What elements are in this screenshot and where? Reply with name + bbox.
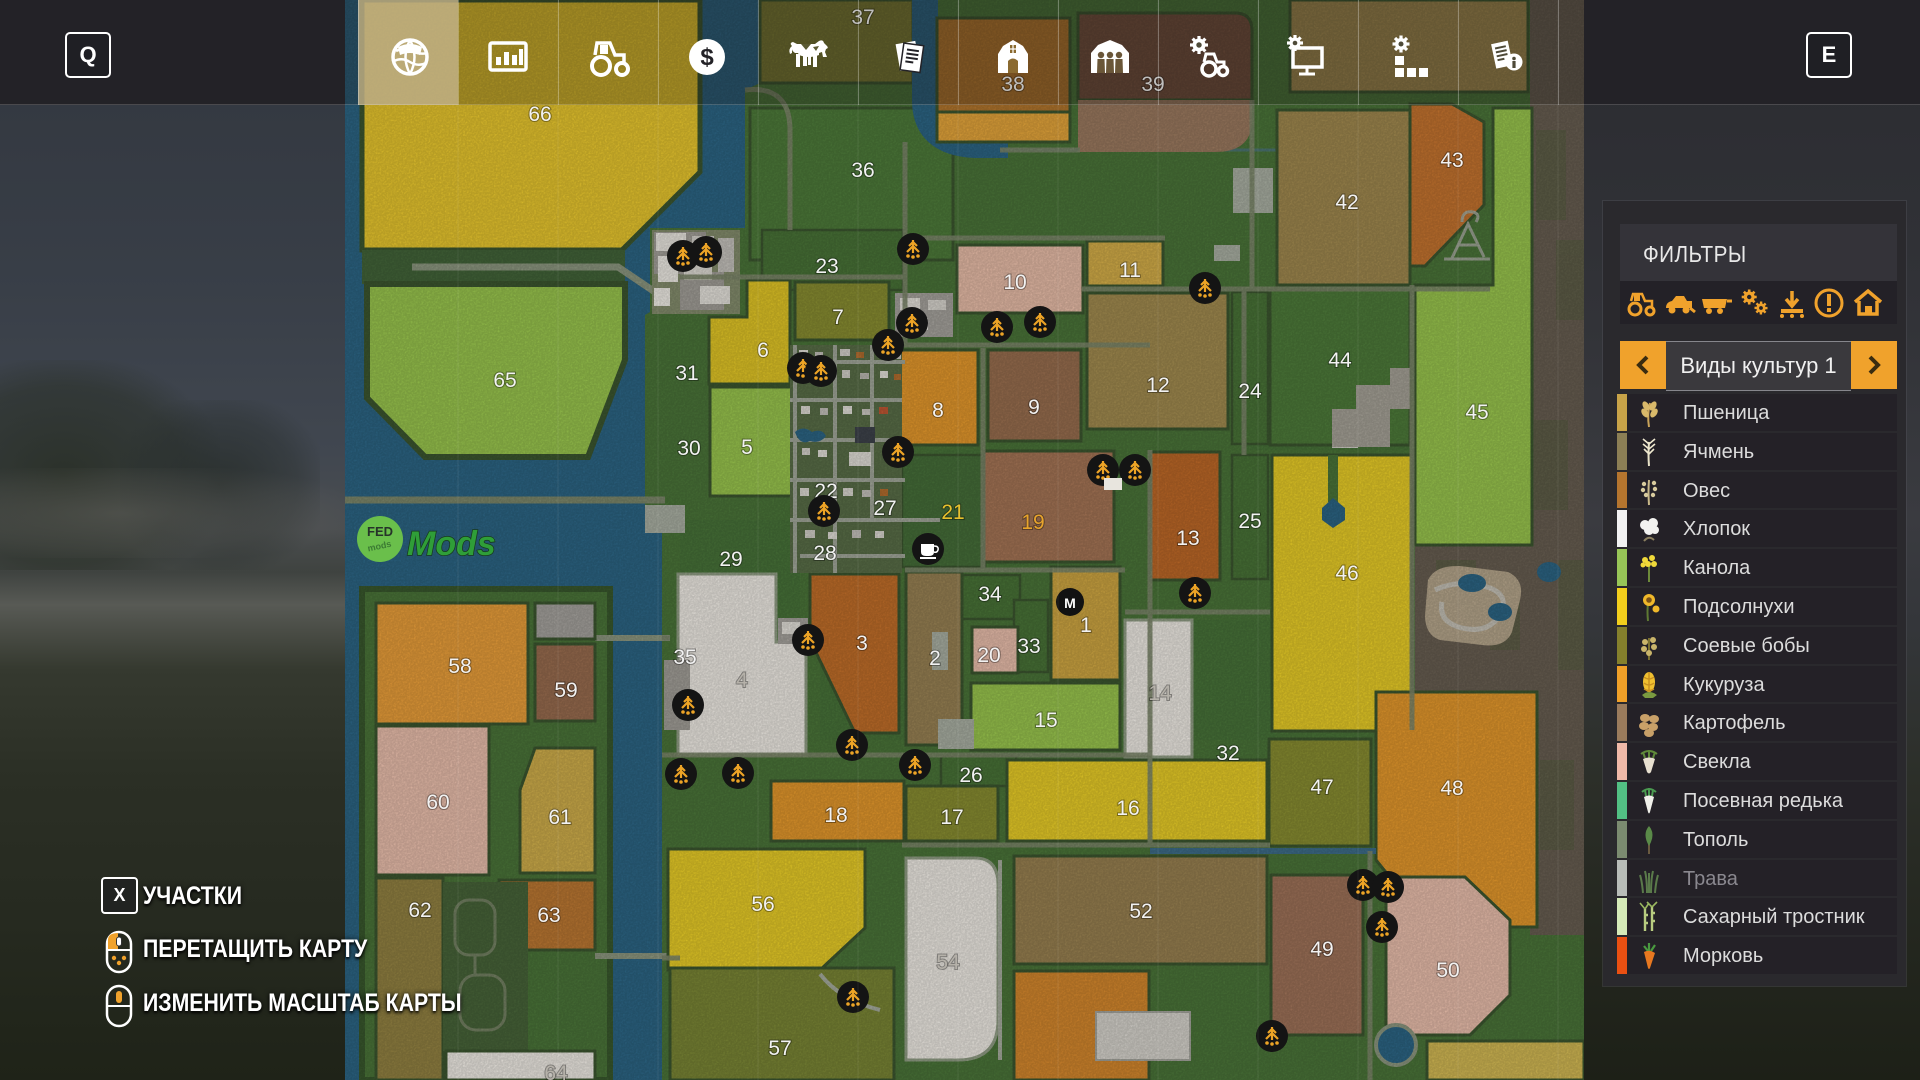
svg-text:33: 33: [1017, 635, 1040, 658]
svg-text:17: 17: [940, 806, 963, 829]
svg-text:56: 56: [751, 893, 774, 916]
svg-text:18: 18: [824, 804, 847, 827]
svg-text:54: 54: [936, 951, 960, 974]
svg-text:48: 48: [1440, 777, 1463, 800]
svg-text:44: 44: [1328, 349, 1352, 372]
svg-text:5: 5: [741, 436, 753, 459]
svg-text:M: M: [1064, 595, 1076, 611]
svg-text:27: 27: [873, 497, 896, 520]
svg-text:49: 49: [1310, 938, 1333, 961]
svg-text:9: 9: [1028, 396, 1040, 419]
svg-text:31: 31: [675, 362, 698, 385]
svg-text:16: 16: [1116, 797, 1139, 820]
svg-text:46: 46: [1335, 562, 1358, 585]
svg-text:34: 34: [978, 583, 1002, 606]
svg-text:Mods: Mods: [407, 525, 496, 563]
svg-text:42: 42: [1335, 191, 1358, 214]
svg-text:29: 29: [719, 548, 742, 571]
svg-text:52: 52: [1129, 900, 1152, 923]
svg-text:64: 64: [544, 1062, 568, 1080]
svg-text:2: 2: [929, 647, 941, 670]
svg-text:47: 47: [1310, 776, 1333, 799]
svg-text:1: 1: [1080, 614, 1092, 637]
svg-text:FED: FED: [367, 524, 393, 539]
svg-text:13: 13: [1176, 527, 1199, 550]
svg-text:28: 28: [813, 542, 836, 565]
svg-text:26: 26: [959, 764, 982, 787]
svg-text:35: 35: [673, 646, 696, 669]
svg-text:11: 11: [1119, 259, 1141, 282]
svg-text:20: 20: [977, 644, 1000, 667]
svg-text:60: 60: [426, 791, 449, 814]
svg-text:23: 23: [815, 255, 838, 278]
svg-text:30: 30: [677, 437, 700, 460]
svg-text:8: 8: [932, 399, 944, 422]
svg-text:21: 21: [941, 501, 964, 524]
svg-text:19: 19: [1021, 511, 1044, 534]
svg-text:43: 43: [1440, 149, 1463, 172]
svg-text:36: 36: [851, 159, 874, 182]
svg-text:50: 50: [1436, 959, 1459, 982]
svg-text:32: 32: [1216, 742, 1239, 765]
svg-text:10: 10: [1003, 271, 1026, 294]
svg-text:7: 7: [832, 306, 844, 329]
svg-text:61: 61: [548, 806, 571, 829]
svg-text:6: 6: [757, 339, 769, 362]
svg-text:14: 14: [1148, 682, 1172, 705]
svg-text:65: 65: [493, 369, 516, 392]
svg-text:4: 4: [736, 669, 748, 692]
svg-text:15: 15: [1034, 709, 1057, 732]
svg-text:$: $: [700, 44, 714, 71]
svg-text:45: 45: [1465, 401, 1488, 424]
svg-text:66: 66: [528, 103, 551, 126]
svg-text:57: 57: [768, 1037, 791, 1060]
svg-text:58: 58: [448, 655, 471, 678]
